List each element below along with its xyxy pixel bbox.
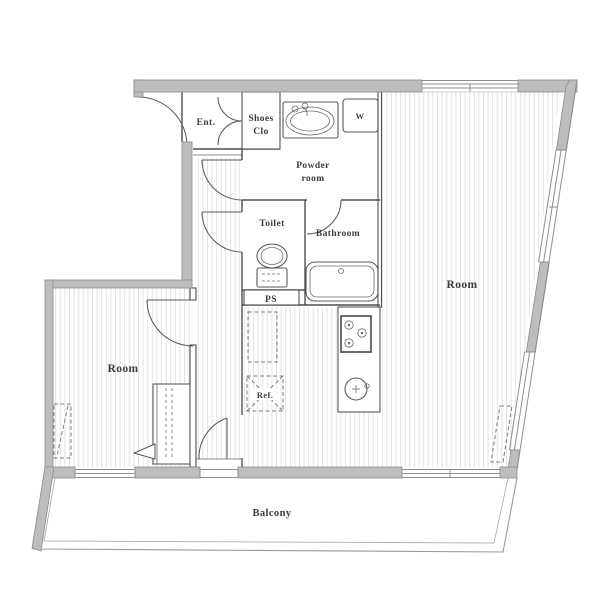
- label-bathroom: Bathroom: [316, 229, 360, 239]
- corridor-floor: [196, 158, 240, 459]
- label-main-room: Room: [447, 279, 478, 291]
- vanity-sink-icon: [283, 102, 338, 138]
- stove-top: [341, 316, 371, 352]
- window-top: [422, 81, 518, 93]
- burner-3-center: [348, 342, 350, 344]
- window-bottom-second-room: [75, 470, 135, 478]
- label-refrigerator: Ref.: [257, 390, 273, 400]
- wall-second-room-left: [45, 280, 53, 467]
- shoes-closet-door-upper-arc: [218, 97, 242, 121]
- label-powder-room-line2: room: [301, 174, 324, 184]
- toilet-tank: [257, 268, 287, 287]
- label-entrance: Ent.: [197, 118, 216, 128]
- window-bottom-corridor: [200, 470, 238, 478]
- second-room-wall-lower: [190, 345, 196, 467]
- wall-balcony-slant: [32, 467, 54, 551]
- burner-2-center: [361, 332, 363, 334]
- toilet-icon: [257, 244, 287, 287]
- label-toilet: Toilet: [259, 219, 285, 229]
- floor-plan-page: Ent. Shoes Clo Powder room W Toilet Bath…: [0, 0, 600, 600]
- label-pipe-space: PS: [265, 295, 277, 305]
- label-balcony: Balcony: [253, 508, 292, 519]
- wall-bottom-corner: [500, 467, 517, 478]
- closet-icon: [153, 384, 192, 464]
- label-second-room: Room: [108, 363, 139, 375]
- wall-second-room-top: [45, 280, 192, 288]
- shoes-closet-door-lower-arc: [218, 121, 242, 145]
- label-shoes-closet-line2: Clo: [253, 127, 268, 137]
- bathtub-outer: [306, 262, 378, 301]
- label-shoes-closet-line1: Shoes: [248, 114, 273, 124]
- entry-door-arc: [138, 97, 187, 146]
- wall-bottom-c: [238, 467, 402, 478]
- label-washing-machine: W: [356, 111, 365, 121]
- stove-icon: [341, 316, 371, 352]
- bathtub-icon: [306, 262, 378, 301]
- burner-1-center: [348, 324, 350, 326]
- window-bottom-main-room: [402, 470, 500, 478]
- label-powder-room-line1: Powder: [296, 161, 330, 171]
- second-room-wall-upper: [190, 288, 196, 300]
- wall-corridor-thick: [182, 142, 192, 288]
- floor-plan: Ent. Shoes Clo Powder room W Toilet Bath…: [0, 0, 600, 600]
- wall-top-left: [134, 80, 422, 92]
- wall-bottom-b: [135, 467, 200, 478]
